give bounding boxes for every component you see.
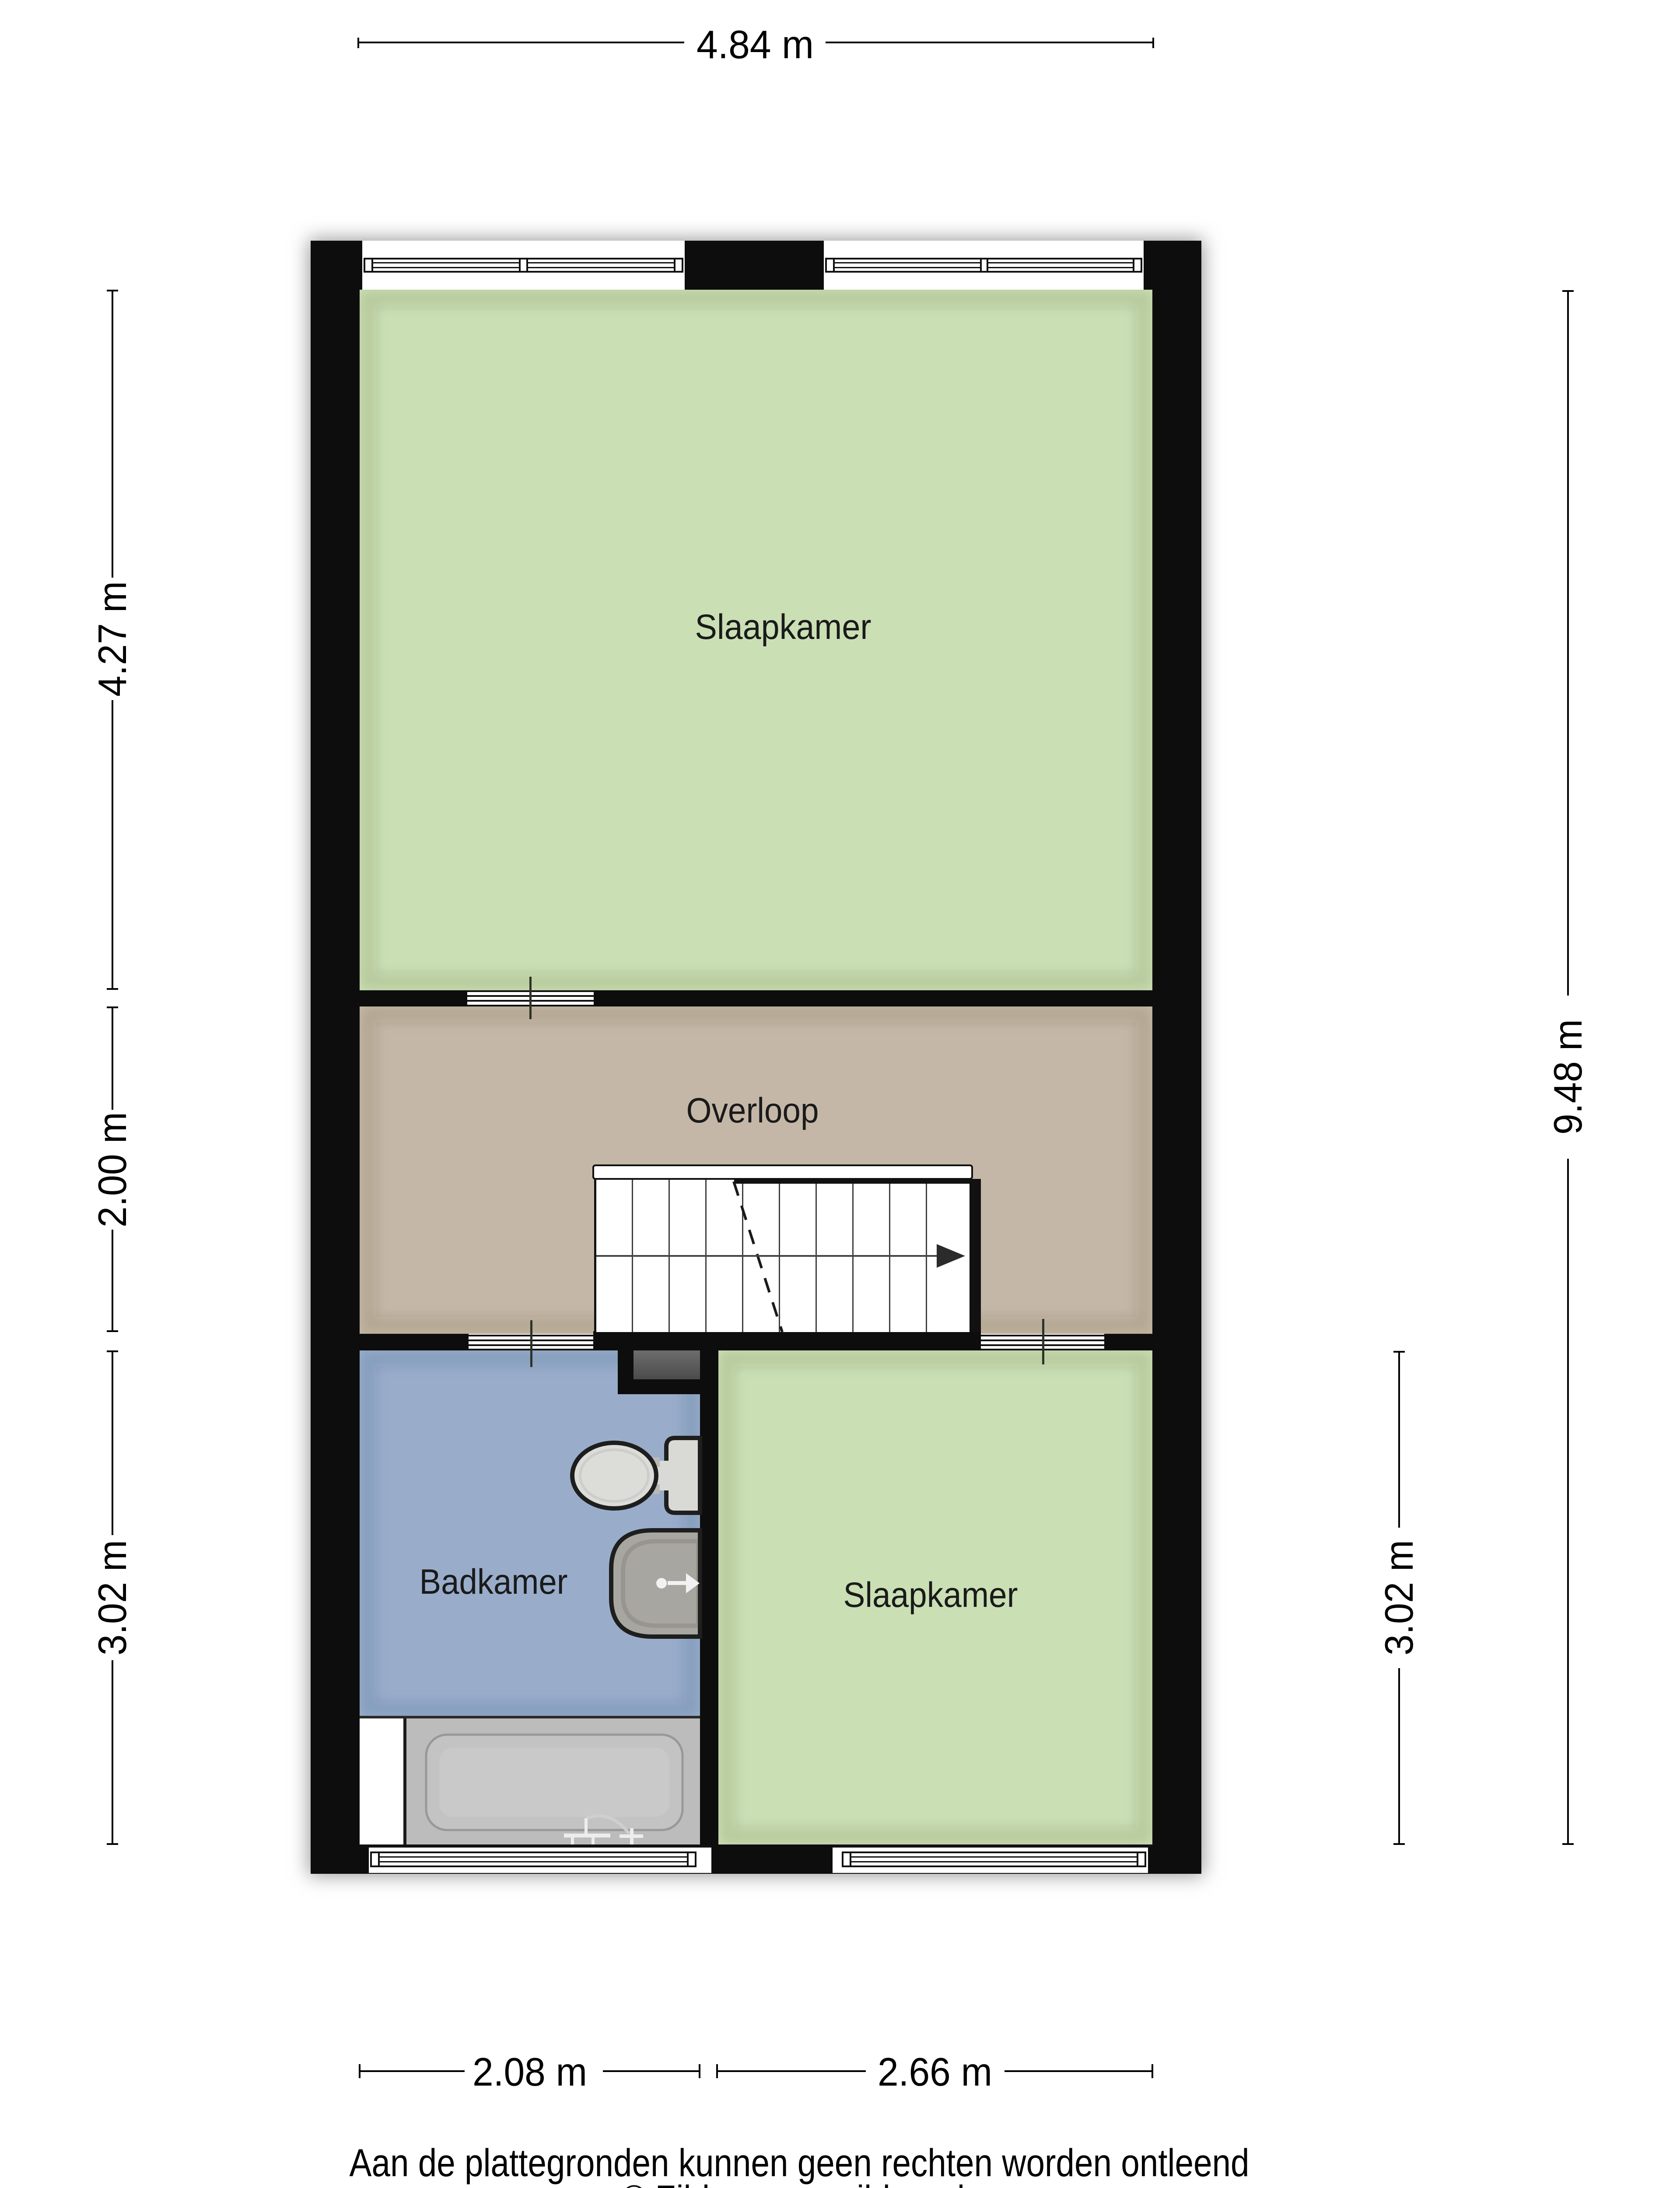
svg-text:Badkamer: Badkamer [420, 1562, 568, 1602]
svg-text:9.48 m: 9.48 m [1546, 1019, 1590, 1135]
svg-text:Slaapkamer: Slaapkamer [843, 1575, 1018, 1615]
svg-text:3.02 m: 3.02 m [1377, 1540, 1421, 1655]
svg-text:Slaapkamer: Slaapkamer [695, 607, 871, 647]
svg-text:Overloop: Overloop [686, 1091, 819, 1130]
svg-text:3.02 m: 3.02 m [91, 1540, 135, 1655]
svg-text:© Zibber www.zibber.nl: © Zibber www.zibber.nl [622, 2179, 965, 2188]
svg-text:4.27 m: 4.27 m [91, 581, 135, 697]
svg-text:2.08 m: 2.08 m [472, 2050, 587, 2094]
svg-text:2.66 m: 2.66 m [878, 2050, 992, 2094]
svg-text:4.84 m: 4.84 m [696, 23, 814, 67]
svg-text:Aan de plattegronden kunnen ge: Aan de plattegronden kunnen geen rechten… [350, 2141, 1249, 2184]
svg-text:2.00 m: 2.00 m [91, 1112, 135, 1227]
